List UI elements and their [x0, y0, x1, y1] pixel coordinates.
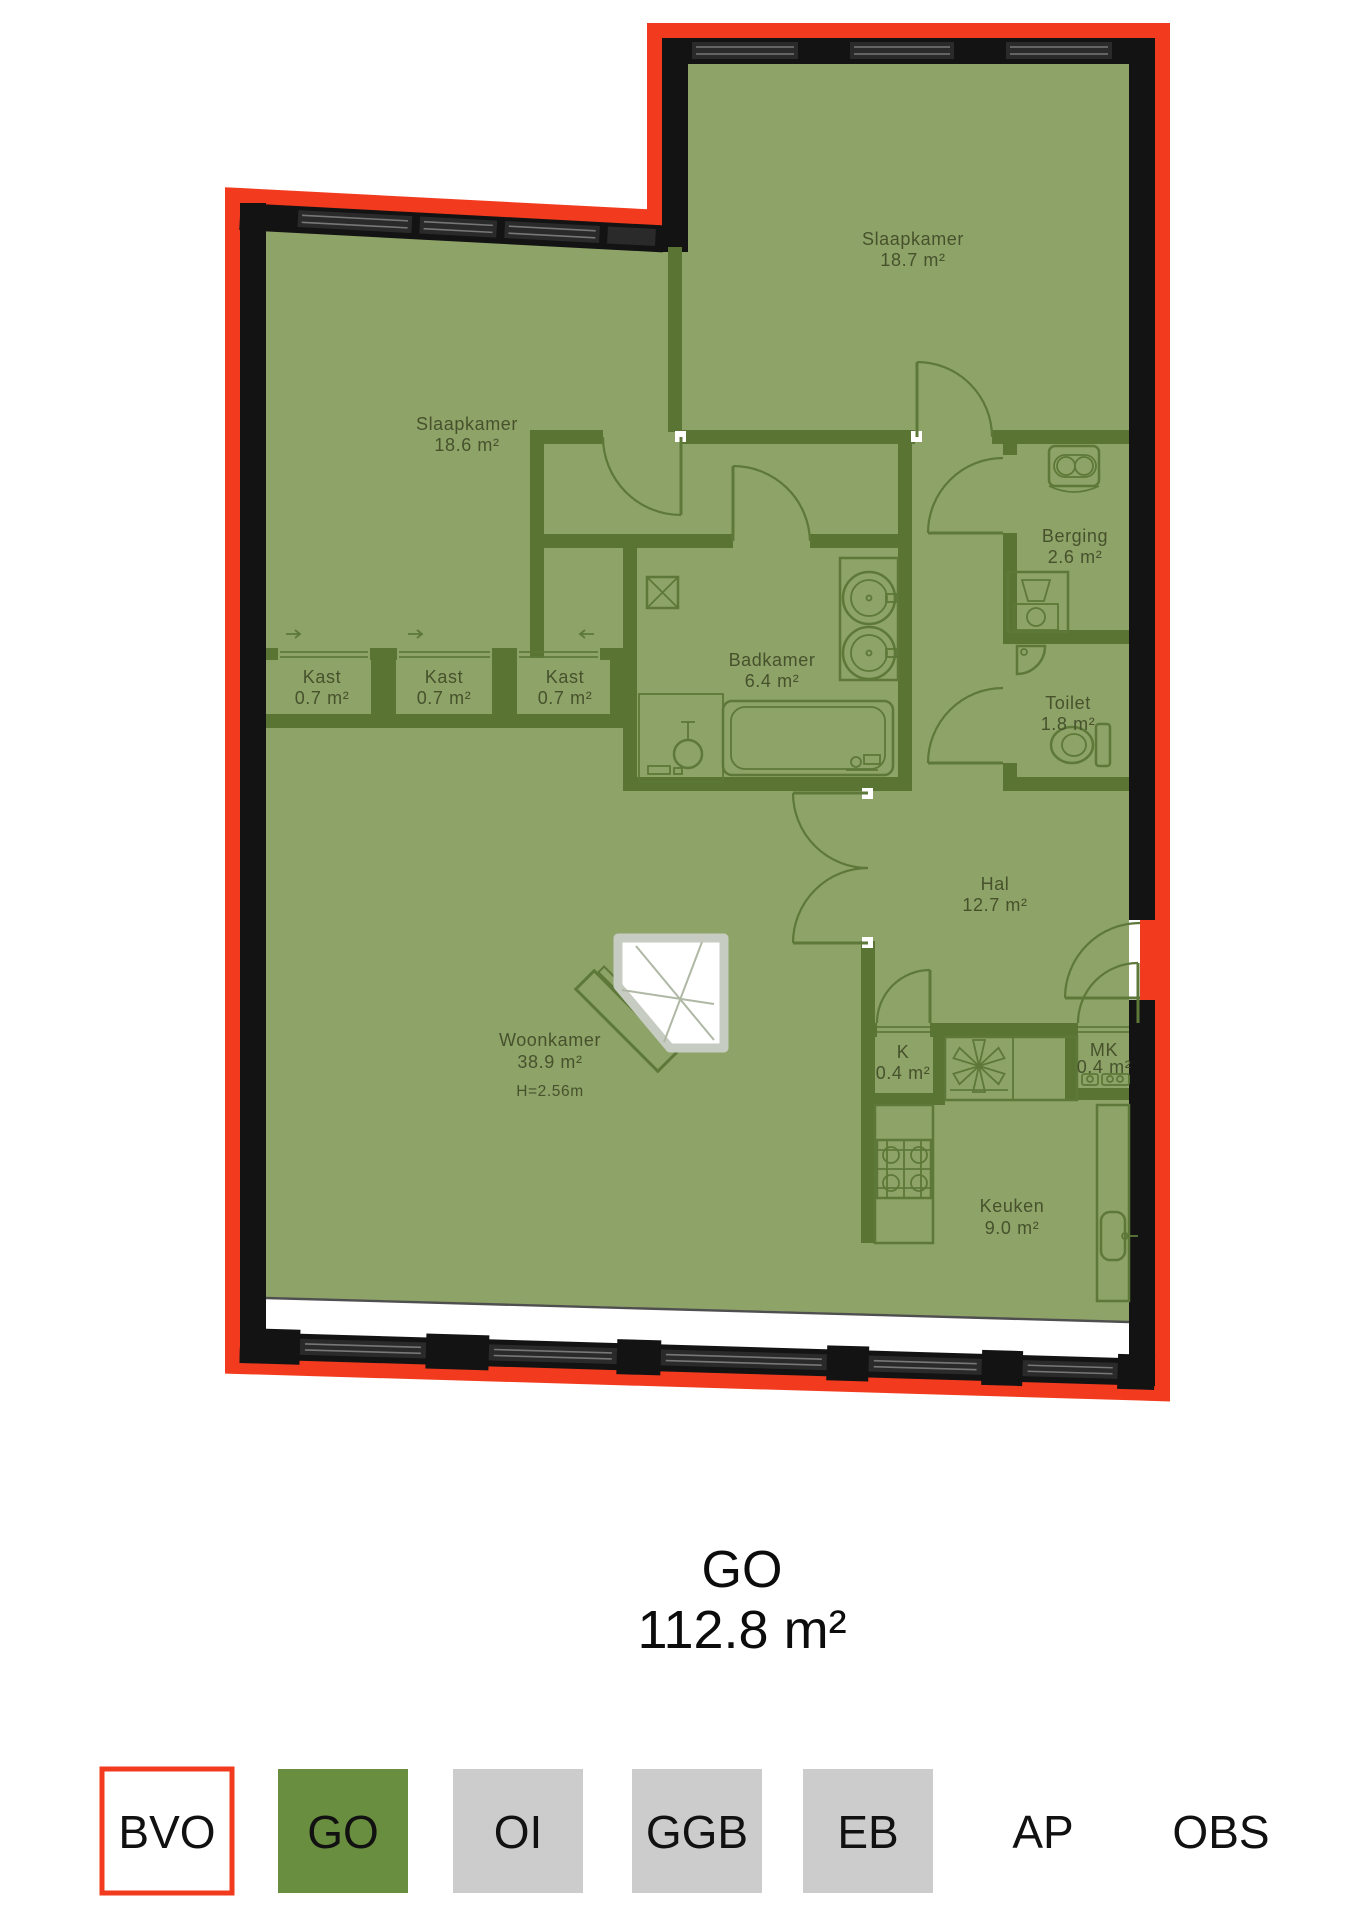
svg-text:GO: GO [307, 1806, 379, 1858]
svg-text:2.6 m²: 2.6 m² [1048, 547, 1103, 567]
svg-text:6.4 m²: 6.4 m² [745, 671, 800, 691]
svg-text:Keuken: Keuken [980, 1196, 1045, 1216]
legend-item-bvo: BVO [102, 1769, 232, 1893]
svg-text:0.7 m²: 0.7 m² [295, 688, 350, 708]
summary-label: GO [702, 1541, 783, 1599]
window [692, 42, 1112, 59]
room-label-kast-2: Kast 0.7 m² [417, 667, 472, 708]
svg-text:AP: AP [1012, 1806, 1073, 1858]
svg-text:12.7 m²: 12.7 m² [962, 895, 1027, 915]
legend-item-ap: AP [1012, 1806, 1073, 1858]
svg-text:H=2.56m: H=2.56m [516, 1083, 584, 1100]
svg-text:Badkamer: Badkamer [729, 650, 816, 670]
room-label-kast-3: Kast 0.7 m² [538, 667, 593, 708]
summary-area: 112.8 m² [637, 1600, 846, 1660]
summary: GO 112.8 m² [637, 1541, 846, 1660]
svg-text:0.7 m²: 0.7 m² [538, 688, 593, 708]
svg-text:9.0 m²: 9.0 m² [985, 1218, 1040, 1238]
legend: BVO GO OI GGB EB AP OBS [102, 1769, 1270, 1893]
svg-text:38.9 m²: 38.9 m² [517, 1052, 582, 1072]
svg-text:Slaapkamer: Slaapkamer [416, 414, 518, 434]
svg-text:GGB: GGB [646, 1806, 748, 1858]
svg-text:K: K [897, 1042, 910, 1062]
svg-text:Kast: Kast [425, 667, 463, 687]
svg-text:1.8 m²: 1.8 m² [1041, 714, 1096, 734]
svg-text:EB: EB [837, 1806, 898, 1858]
svg-text:Kast: Kast [303, 667, 341, 687]
svg-text:18.7 m²: 18.7 m² [880, 250, 945, 270]
svg-text:Berging: Berging [1042, 526, 1108, 546]
svg-text:Slaapkamer: Slaapkamer [862, 229, 964, 249]
svg-text:OBS: OBS [1172, 1806, 1269, 1858]
legend-item-eb: EB [803, 1769, 933, 1893]
svg-text:Woonkamer: Woonkamer [499, 1030, 601, 1050]
floorplan-canvas: Slaapkamer 18.7 m² Slaapkamer 18.6 m² Be… [0, 0, 1358, 1920]
svg-text:0.4 m²: 0.4 m² [1077, 1057, 1132, 1077]
bedroom-divider-wall [668, 247, 682, 432]
svg-text:18.6 m²: 18.6 m² [434, 435, 499, 455]
legend-item-oi: OI [453, 1769, 583, 1893]
room-label-berging: Berging 2.6 m² [1042, 526, 1108, 567]
room-label-kast-1: Kast 0.7 m² [295, 667, 350, 708]
svg-text:OI: OI [494, 1806, 543, 1858]
svg-text:BVO: BVO [118, 1806, 215, 1858]
svg-text:Toilet: Toilet [1045, 693, 1091, 713]
notch-wall [662, 38, 688, 252]
svg-text:0.4 m²: 0.4 m² [876, 1063, 931, 1083]
legend-item-obs: OBS [1172, 1806, 1269, 1858]
svg-text:Hal: Hal [981, 874, 1010, 894]
room-label-toilet: Toilet 1.8 m² [1041, 693, 1096, 734]
legend-item-go: GO [278, 1769, 408, 1893]
svg-text:Kast: Kast [546, 667, 584, 687]
svg-text:0.7 m²: 0.7 m² [417, 688, 472, 708]
legend-item-ggb: GGB [632, 1769, 762, 1893]
